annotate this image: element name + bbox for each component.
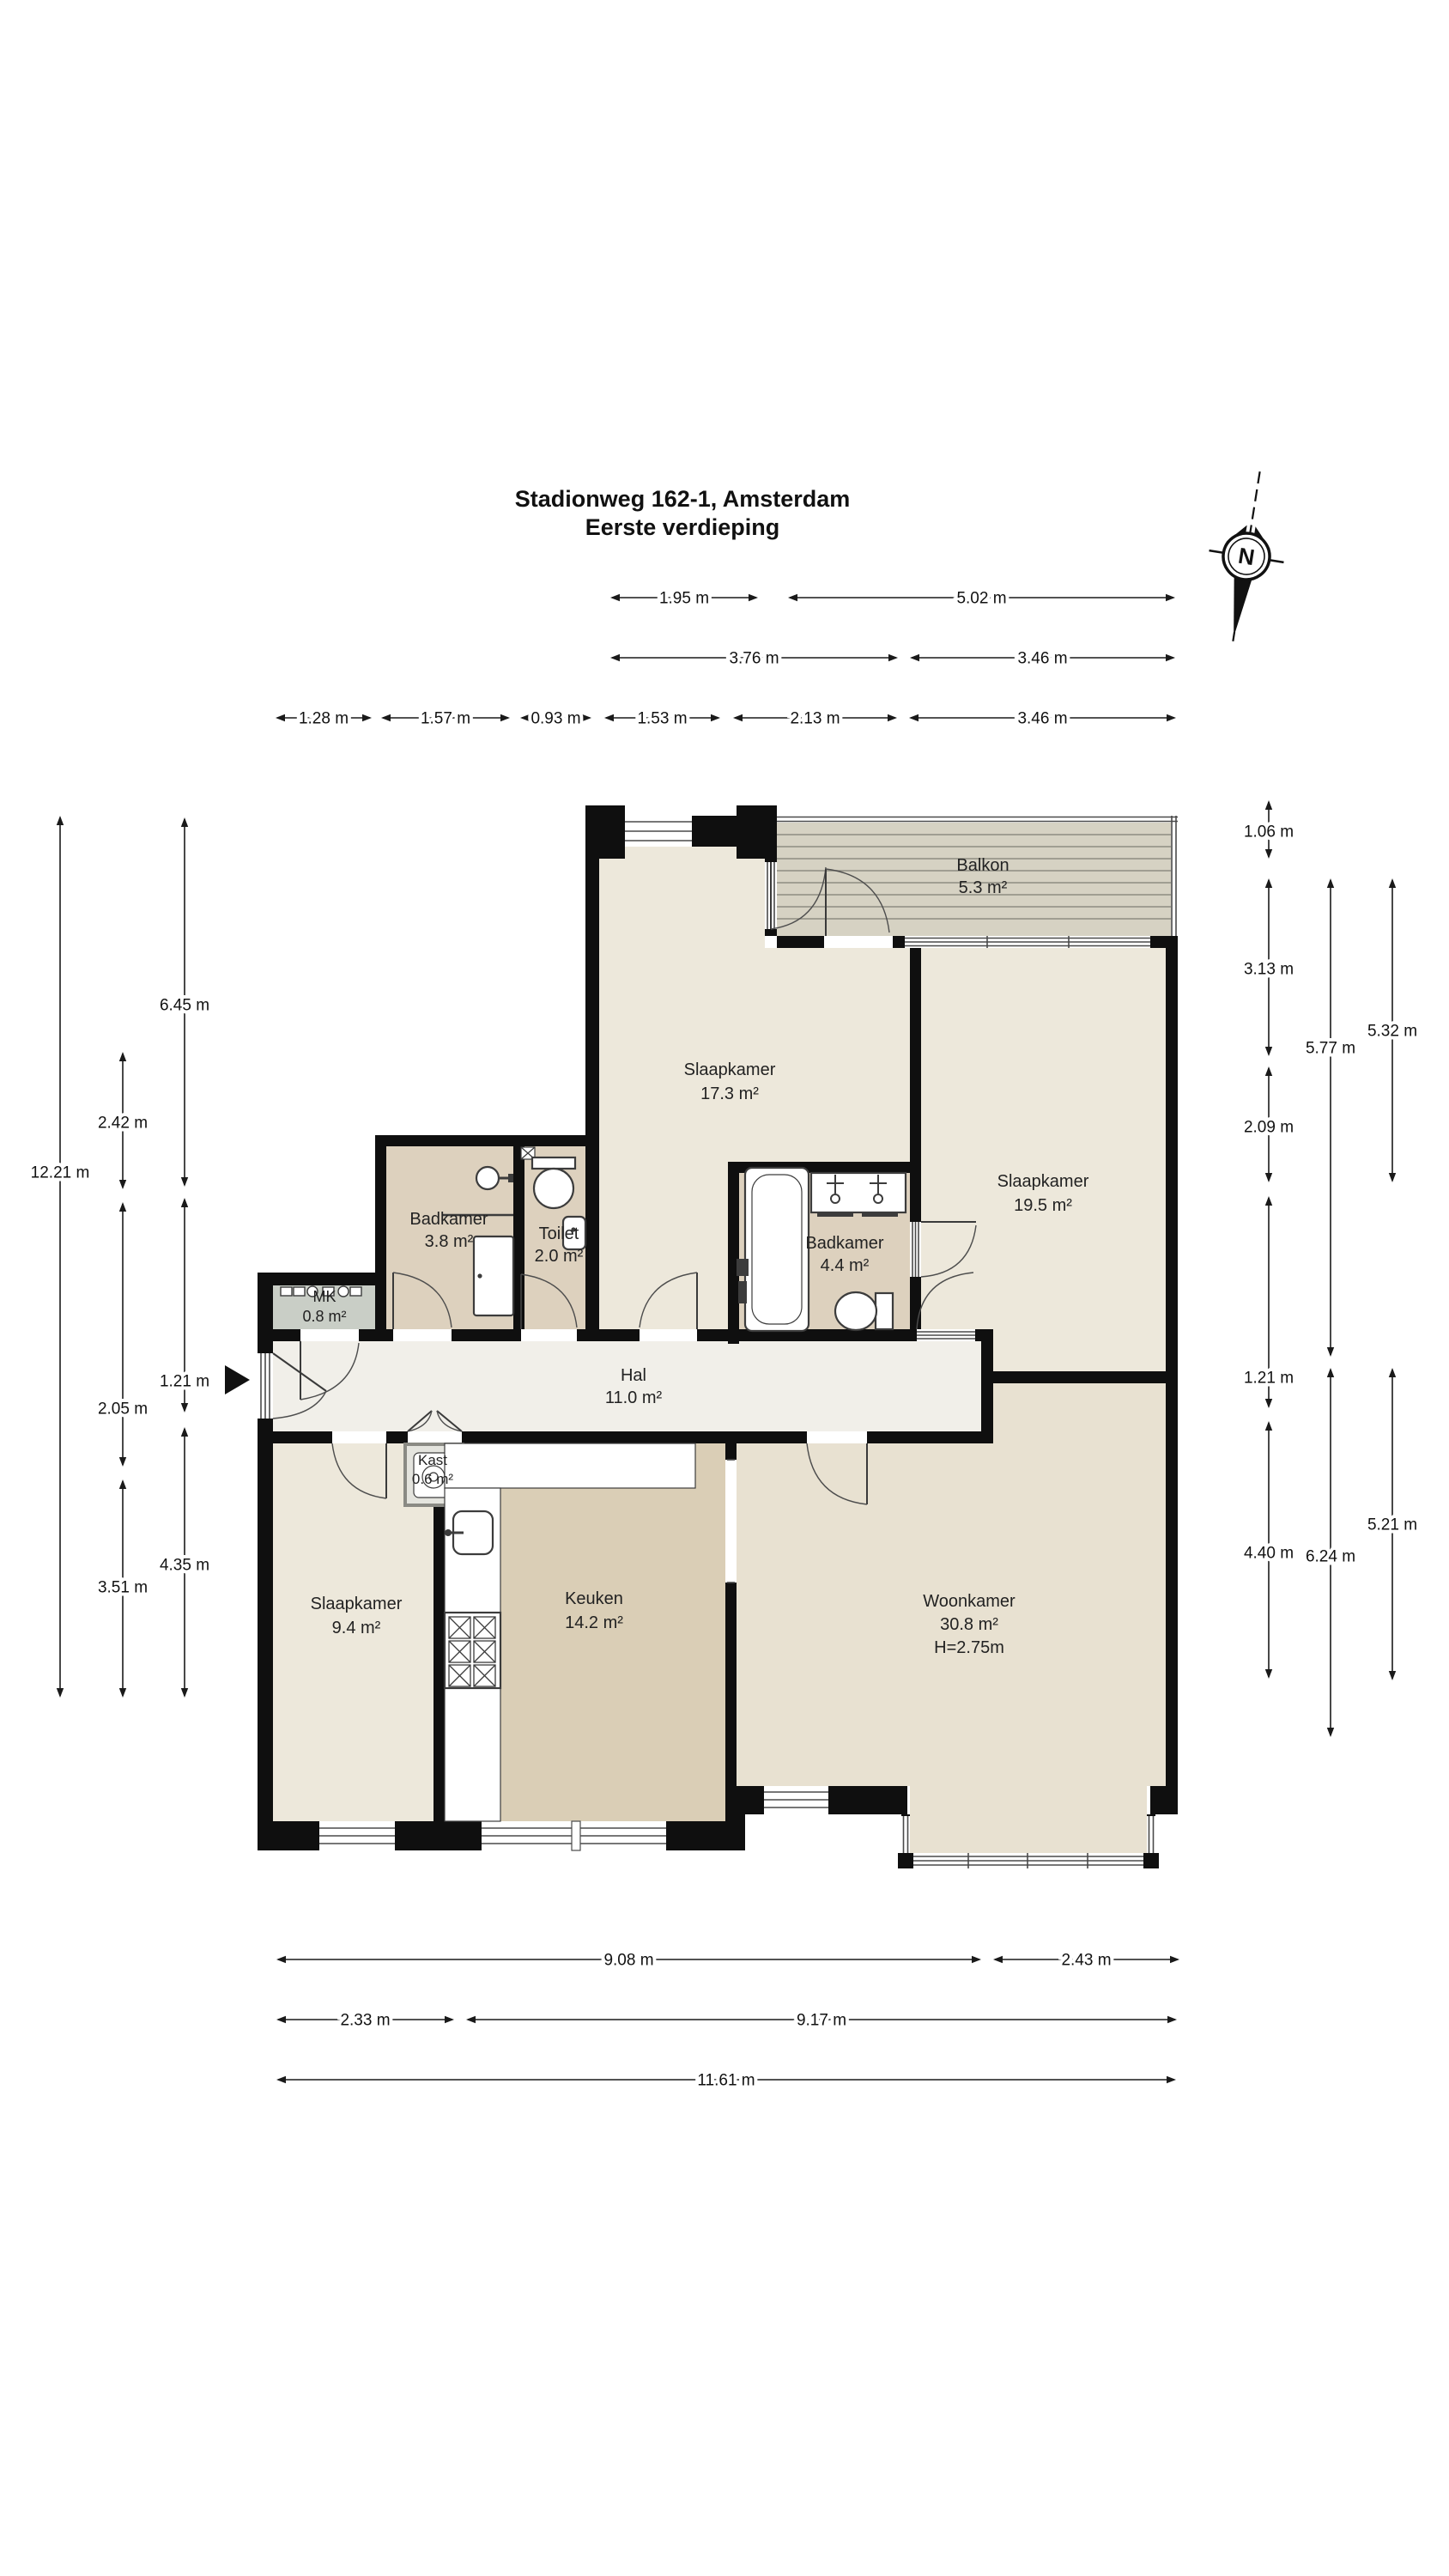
dimension-label: 1.21 m: [160, 1373, 209, 1391]
dimension-label: 0.93 m: [530, 710, 580, 728]
dimension-vertical: 4.35 m: [160, 1427, 209, 1698]
dimension-vertical: 3.51 m: [98, 1479, 148, 1698]
dimension-horizontal: 0.93 m: [520, 710, 591, 728]
dimension-vertical: 2.09 m: [1244, 1066, 1294, 1182]
dimension-label: 3.76 m: [729, 650, 779, 668]
dimension-horizontal: 3.76 m: [610, 650, 898, 668]
dimension-vertical: 1.06 m: [1244, 800, 1294, 859]
dimension-label: 2.13 m: [790, 710, 840, 728]
dimension-label: 2.09 m: [1244, 1119, 1294, 1137]
toilet-icon-badkamer2: [835, 1292, 893, 1330]
dimension-vertical: 6.24 m: [1306, 1368, 1355, 1737]
dimension-horizontal: 2.43 m: [993, 1952, 1179, 1970]
toilet-icon-toilet: [532, 1157, 575, 1208]
dimension-horizontal: 1.57 m: [381, 710, 510, 728]
dimension-vertical: 5.21 m: [1367, 1368, 1417, 1680]
entrance-arrow-icon: [225, 1365, 250, 1394]
dimension-label: 2.33 m: [340, 2012, 390, 2030]
dimension-horizontal: 11.61 m: [276, 2072, 1176, 2090]
dimension-label: 4.40 m: [1244, 1545, 1294, 1563]
badkamer2-door-threshold: [910, 1222, 921, 1277]
dimension-vertical: 2.42 m: [98, 1052, 148, 1189]
dimension-label: 3.46 m: [1017, 650, 1067, 668]
page-title-line1: Stadionweg 162-1, Amsterdam: [515, 486, 851, 512]
floor-woonkamer-arm: [993, 1383, 1166, 1443]
dimension-label: 2.43 m: [1061, 1952, 1111, 1970]
floor-slaapkamer-2: [921, 948, 1166, 1371]
floorplan-page: Stadionweg 162-1, Amsterdam Eerste verdi…: [0, 0, 1449, 2576]
dimension-label: 9.08 m: [603, 1952, 653, 1970]
dimension-label: 9.17 m: [797, 2012, 846, 2030]
dimension-horizontal: 3.46 m: [910, 650, 1175, 668]
dimension-label: 5.32 m: [1367, 1023, 1417, 1041]
dimension-label: 3.13 m: [1244, 961, 1294, 979]
dimension-label: 5.21 m: [1367, 1516, 1417, 1534]
window-slaapkamer1-top: [625, 816, 692, 847]
dimension-vertical: 6.45 m: [160, 817, 209, 1187]
dimension-label: 11.61 m: [697, 2072, 755, 2090]
dimension-label: 5.02 m: [956, 590, 1006, 608]
front-door-threshold: [258, 1353, 273, 1419]
dimension-label: 1.28 m: [299, 710, 349, 728]
dimension-vertical: 1.21 m: [1244, 1196, 1294, 1408]
compass-icon: N: [1196, 465, 1297, 647]
dimension-vertical: 3.13 m: [1244, 878, 1294, 1056]
keuken-woonkamer-opening: [727, 1460, 735, 1583]
dimension-label: 12.21 m: [31, 1164, 90, 1182]
window-balcony-bottom: [905, 936, 1150, 948]
stove-icon: [445, 1613, 500, 1688]
floor-woonkamer-bay: [910, 1786, 1147, 1853]
dimension-label: 1.95 m: [659, 590, 709, 608]
floor-hal: [273, 1341, 981, 1431]
dimension-label: 1.53 m: [637, 710, 687, 728]
dimension-horizontal: 9.08 m: [276, 1952, 981, 1970]
dimension-horizontal: 1.53 m: [604, 710, 720, 728]
dimension-vertical: 4.40 m: [1244, 1421, 1294, 1679]
dimension-label: 3.46 m: [1017, 710, 1067, 728]
dimension-horizontal: 2.13 m: [733, 710, 897, 728]
dimension-vertical: 2.05 m: [98, 1202, 148, 1467]
dimension-label: 3.51 m: [98, 1579, 148, 1597]
dimension-horizontal: 2.33 m: [276, 2012, 454, 2030]
dimension-label: 4.35 m: [160, 1557, 209, 1575]
dimension-label: 1.21 m: [1244, 1370, 1294, 1388]
dimension-horizontal: 9.17 m: [466, 2012, 1177, 2030]
dimension-label: 5.77 m: [1306, 1040, 1355, 1058]
page-title-line2: Eerste verdieping: [585, 514, 780, 540]
double-sink-icon-badkamer2: [811, 1173, 906, 1217]
dimension-label: 1.06 m: [1244, 823, 1294, 841]
dimension-horizontal: 1.28 m: [276, 710, 372, 728]
bathtub-icon-badkamer2: [737, 1168, 809, 1331]
dimension-vertical: 5.77 m: [1306, 878, 1355, 1357]
dimension-horizontal: 3.46 m: [909, 710, 1176, 728]
dimension-label: 6.45 m: [160, 997, 209, 1015]
shower-icon-badkamer1: [474, 1236, 513, 1315]
slaapkamer2-door-threshold: [917, 1329, 975, 1341]
dimension-vertical: 1.21 m: [160, 1198, 209, 1413]
dimension-vertical: 12.21 m: [31, 816, 90, 1698]
dimension-horizontal: 5.02 m: [788, 590, 1175, 608]
dimension-label: 2.05 m: [98, 1400, 148, 1419]
dimension-label: 1.57 m: [421, 710, 470, 728]
dimension-label: 2.42 m: [98, 1115, 148, 1133]
dimension-horizontal: 1.95 m: [610, 590, 758, 608]
dimension-label: 6.24 m: [1306, 1548, 1355, 1566]
window-slaapkamer3-bottom: [319, 1821, 395, 1850]
window-keuken-bottom: [482, 1821, 666, 1850]
dimension-vertical: 5.32 m: [1367, 878, 1417, 1182]
window-woonkamer-bottom: [764, 1786, 828, 1814]
floorplan-canvas: Stadionweg 162-1, Amsterdam Eerste verdi…: [0, 0, 1449, 2576]
